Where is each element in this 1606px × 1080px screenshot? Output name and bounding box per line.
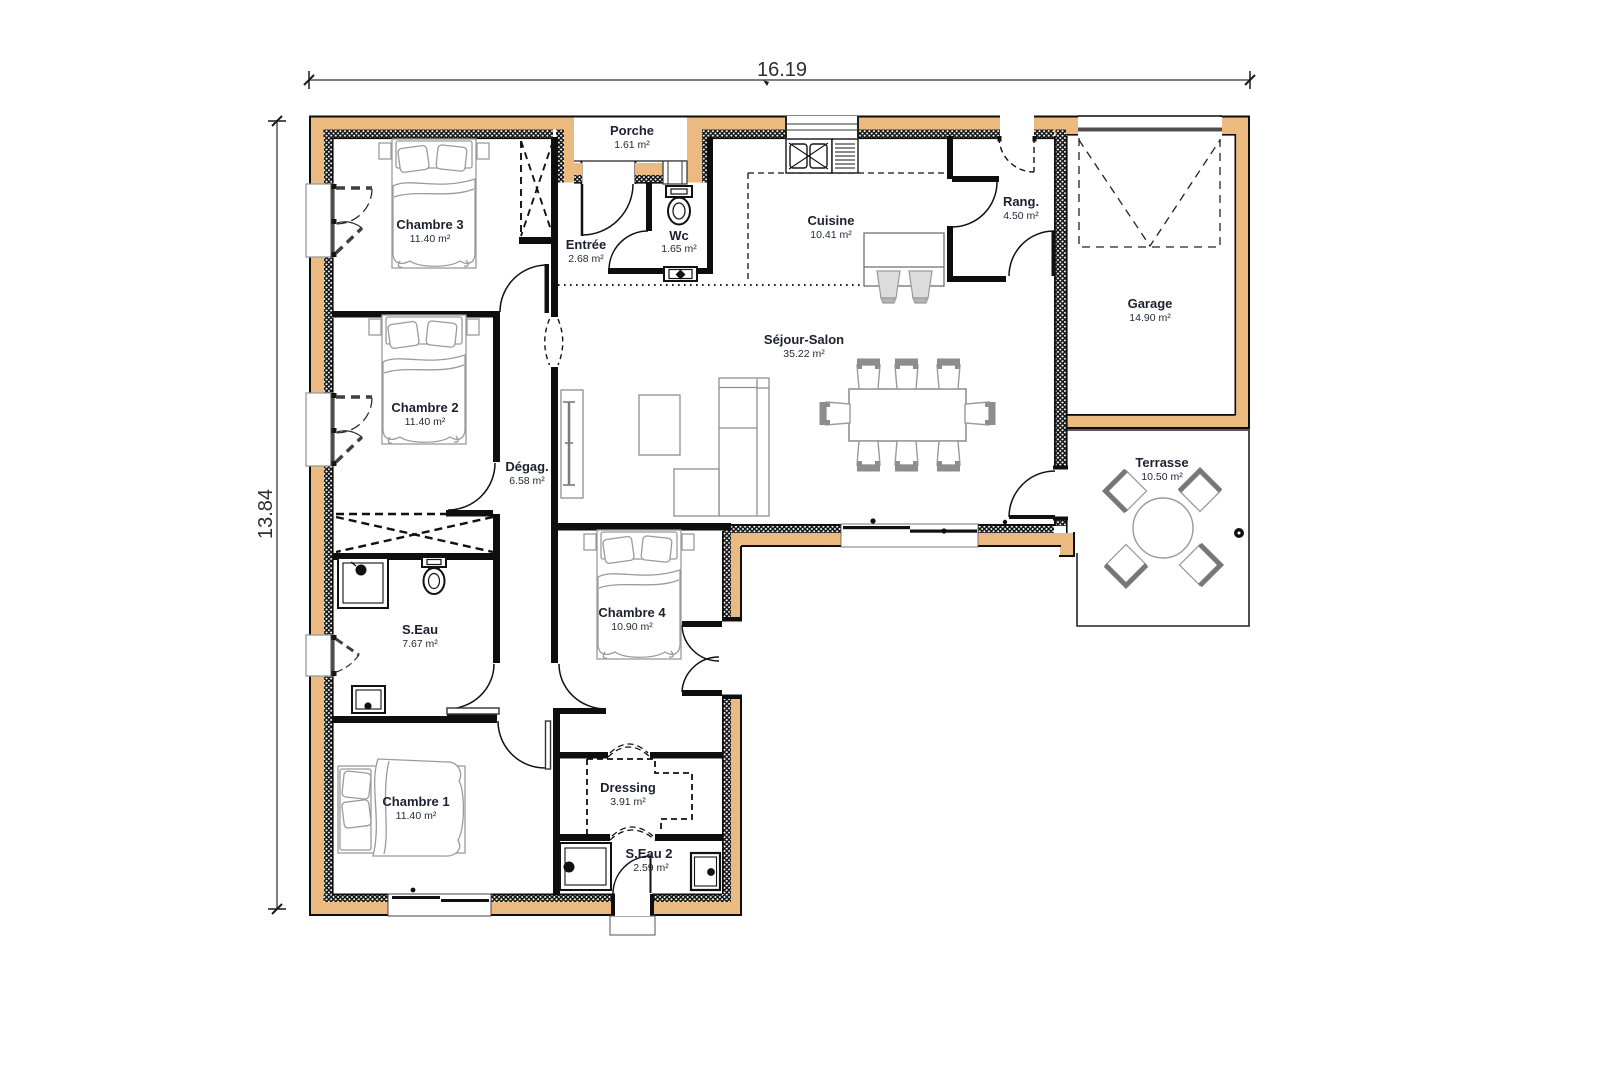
svg-text:Cuisine: Cuisine bbox=[808, 213, 855, 228]
svg-text:Séjour-Salon: Séjour-Salon bbox=[764, 332, 844, 347]
svg-text:13.84: 13.84 bbox=[255, 489, 277, 539]
svg-text:Dressing: Dressing bbox=[600, 780, 656, 795]
svg-text:11.40 m²: 11.40 m² bbox=[410, 233, 451, 245]
svg-text:1.65 m²: 1.65 m² bbox=[661, 243, 697, 255]
svg-text:Chambre 3: Chambre 3 bbox=[396, 217, 463, 232]
svg-text:Porche: Porche bbox=[610, 123, 654, 138]
svg-text:S.Eau 2: S.Eau 2 bbox=[626, 846, 673, 861]
svg-text:3.91 m²: 3.91 m² bbox=[610, 796, 646, 808]
svg-text:11.40 m²: 11.40 m² bbox=[396, 810, 437, 822]
svg-text:Garage: Garage bbox=[1128, 296, 1173, 311]
svg-text:10.41 m²: 10.41 m² bbox=[810, 229, 852, 241]
svg-text:4.50 m²: 4.50 m² bbox=[1003, 210, 1039, 222]
svg-text:Wc: Wc bbox=[669, 228, 689, 243]
svg-text:Chambre 1: Chambre 1 bbox=[382, 794, 449, 809]
svg-text:2.59 m²: 2.59 m² bbox=[633, 862, 669, 874]
svg-text:14.90 m²: 14.90 m² bbox=[1129, 312, 1171, 324]
svg-text:1.61 m²: 1.61 m² bbox=[614, 139, 650, 151]
svg-text:16.19: 16.19 bbox=[757, 59, 807, 81]
svg-text:Chambre 4: Chambre 4 bbox=[598, 605, 666, 620]
svg-text:10.50 m²: 10.50 m² bbox=[1141, 471, 1183, 483]
svg-text:10.90 m²: 10.90 m² bbox=[611, 621, 653, 633]
svg-text:Rang.: Rang. bbox=[1003, 194, 1039, 209]
svg-text:11.40 m²: 11.40 m² bbox=[405, 416, 446, 428]
svg-text:Terrasse: Terrasse bbox=[1135, 455, 1188, 470]
svg-text:S.Eau: S.Eau bbox=[402, 622, 438, 637]
svg-text:Chambre 2: Chambre 2 bbox=[391, 400, 458, 415]
svg-text:35.22 m²: 35.22 m² bbox=[783, 348, 825, 360]
svg-text:6.58 m²: 6.58 m² bbox=[509, 475, 545, 487]
svg-text:Dégag.: Dégag. bbox=[505, 459, 548, 474]
svg-text:7.67 m²: 7.67 m² bbox=[402, 638, 438, 650]
svg-text:Entrée: Entrée bbox=[566, 237, 606, 252]
svg-text:2.68 m²: 2.68 m² bbox=[568, 253, 604, 265]
